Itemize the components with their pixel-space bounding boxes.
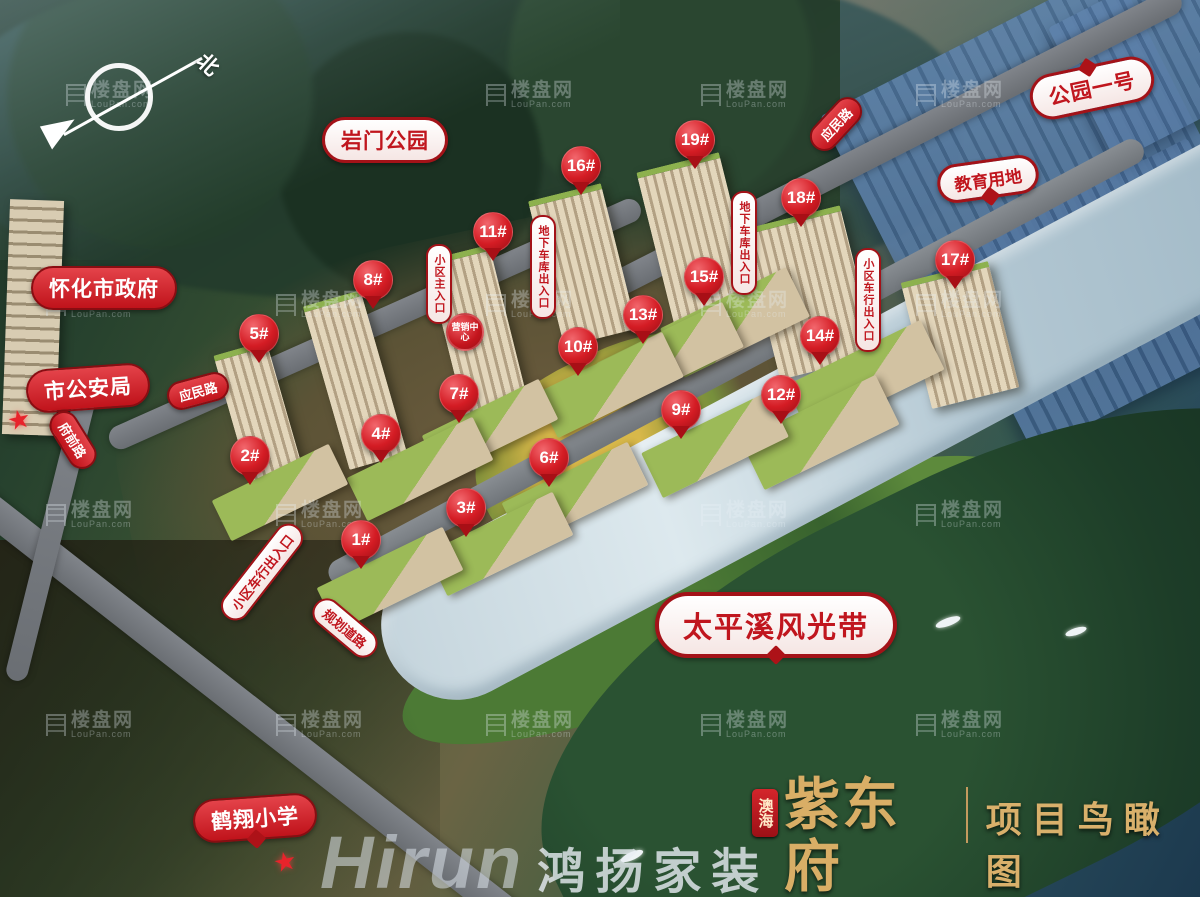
building-marker: 3# (446, 488, 486, 528)
building-marker: 17# (935, 240, 975, 280)
map-label: 怀化市政府 (31, 266, 177, 310)
project-logo: 紫东府 (784, 775, 944, 897)
building-marker: 19# (675, 120, 715, 160)
building-marker: 6# (529, 438, 569, 478)
image-caption: 项目鸟瞰图 (986, 791, 1200, 895)
map-label: 太平溪风光带 (655, 592, 897, 658)
building-marker: 18# (781, 178, 821, 218)
aerial-rendering: 楼盘网LouPan.com楼盘网LouPan.com楼盘网LouPan.com楼… (0, 0, 1200, 897)
map-label: 营销中心 (446, 313, 484, 351)
map-label: 岩门公园 (322, 117, 448, 163)
map-label: 市公安局 (25, 362, 152, 415)
building-marker: 10# (558, 327, 598, 367)
building-marker: 7# (439, 374, 479, 414)
building-marker: 16# (561, 146, 601, 186)
building-marker: 15# (684, 257, 724, 297)
north-label: 北 (191, 46, 227, 82)
building-marker: 9# (661, 390, 701, 430)
map-label: 地下车库出入口 (731, 191, 757, 295)
building-marker: 12# (761, 375, 801, 415)
building-marker: 1# (341, 520, 381, 560)
building-marker: 13# (623, 295, 663, 335)
map-label: 地下车库出入口 (530, 215, 556, 319)
building-marker: 5# (239, 314, 279, 354)
watermark-domain: LouPan.com (71, 310, 134, 319)
building-marker: 14# (800, 316, 840, 356)
map-label: 小区主入口 (426, 244, 452, 324)
building-marker: 2# (230, 436, 270, 476)
brand-divider (966, 787, 968, 843)
map-label: 府前路 (44, 406, 102, 475)
map-label: 小区车行出入口 (855, 248, 881, 352)
compass-ring-icon (85, 63, 153, 131)
project-branding: 澳海 紫东府 丨市府为邻 · 山水相伴 · 未来繁华丨 项目鸟瞰图 (752, 775, 1200, 897)
developer-seal: 澳海 (752, 789, 778, 837)
building-marker: 8# (353, 260, 393, 300)
watermark-domain: LouPan.com (71, 520, 134, 529)
building-marker: 4# (361, 414, 401, 454)
building-marker: 11# (473, 212, 513, 252)
compass: 北 (60, 45, 240, 165)
map-label: 鹤翔小学 (192, 792, 319, 845)
